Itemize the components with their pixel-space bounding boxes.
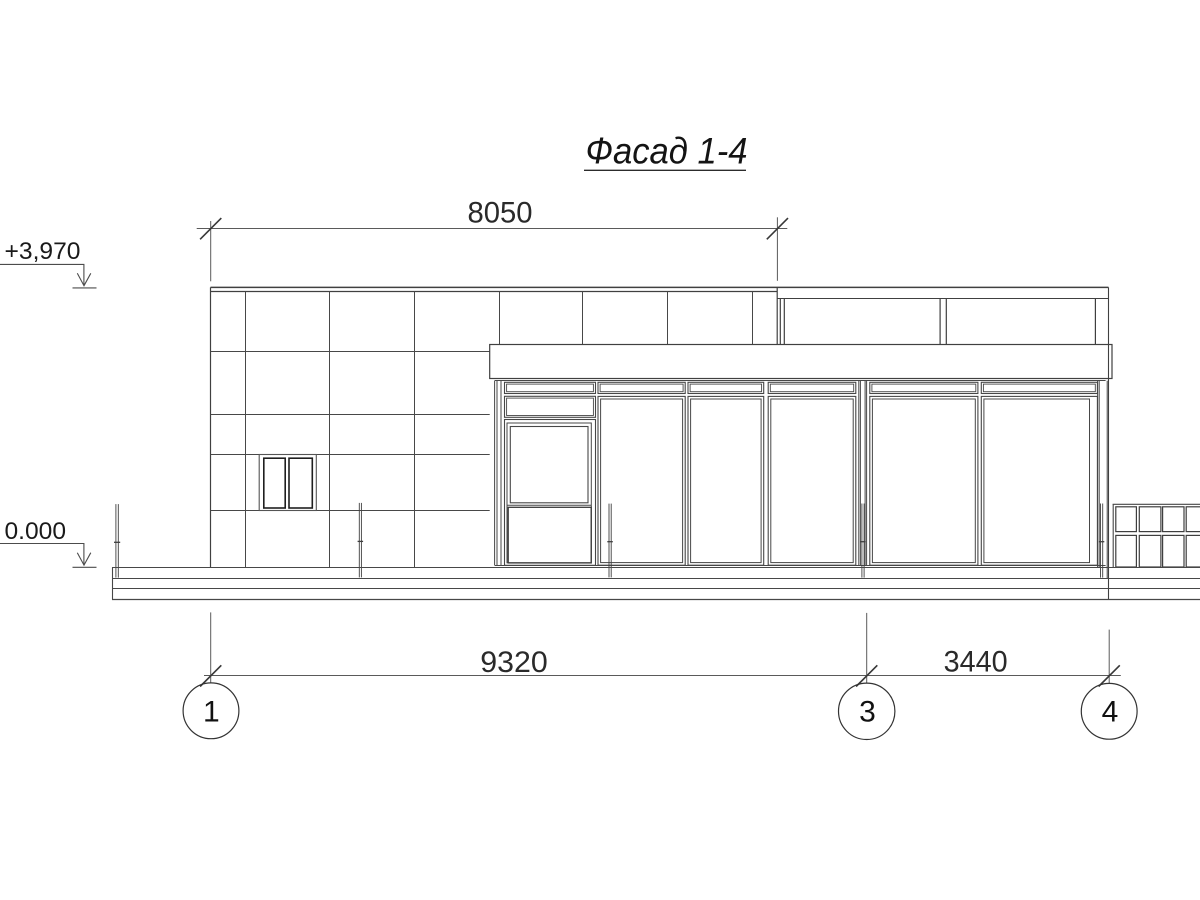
svg-text:4: 4	[1102, 695, 1119, 728]
svg-text:Фасад 1-4: Фасад 1-4	[586, 130, 748, 172]
svg-text:9320: 9320	[480, 646, 548, 679]
svg-text:3440: 3440	[944, 646, 1008, 679]
svg-text:1: 1	[203, 695, 220, 728]
svg-text:+3,970: +3,970	[5, 238, 81, 265]
svg-text:8050: 8050	[468, 196, 533, 229]
svg-text:3: 3	[859, 695, 876, 728]
svg-text:0.000: 0.000	[5, 518, 67, 545]
